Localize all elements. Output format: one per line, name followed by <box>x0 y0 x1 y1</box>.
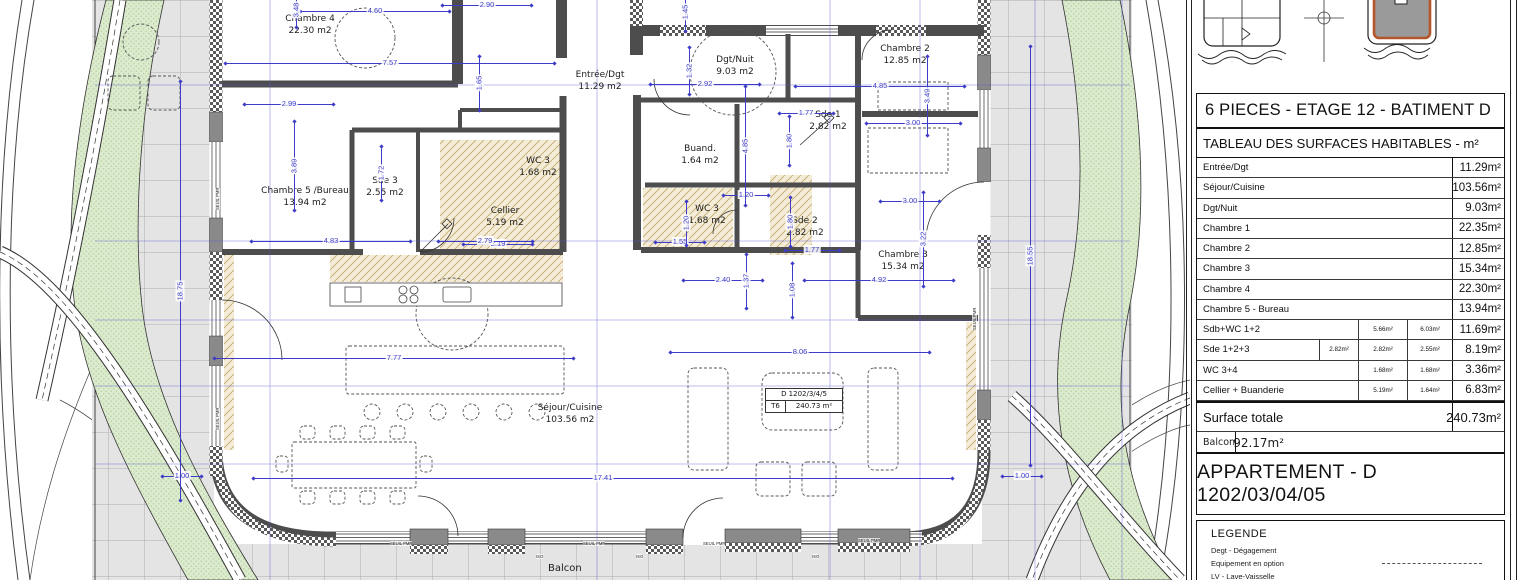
row-total-value: 11.29m² <box>1452 158 1504 177</box>
row-total-value: 8.19m² <box>1452 340 1504 359</box>
right-wall-details <box>978 0 991 450</box>
row-sub-value <box>1407 178 1452 197</box>
row-sub-value <box>1358 178 1407 197</box>
row-sub-value <box>1358 259 1407 278</box>
row-total-value: 22.30m² <box>1452 280 1504 299</box>
balcony-row: Balcon 92.17m² <box>1197 432 1287 454</box>
legend-item: LV - Lave-Vaisselle <box>1211 570 1504 580</box>
kitchen-counter <box>330 283 562 306</box>
floor-plan-drawing <box>0 0 1190 580</box>
surface-total-value: 240.73m² <box>1452 403 1504 431</box>
surface-table-row: Cellier + Buanderie5.19m²1.64m²6.83m² <box>1197 381 1504 401</box>
title-block-panel: 6 PIECES - ETAGE 12 - BATIMENT D TABLEAU… <box>1196 0 1507 580</box>
surface-table: TABLEAU DES SURFACES HABITABLES - m² Ent… <box>1196 128 1505 453</box>
row-sub-value <box>1319 320 1358 339</box>
row-sub-value <box>1358 239 1407 258</box>
balcony-row-label: Balcon <box>1197 432 1235 453</box>
row-sub-value <box>1319 361 1358 380</box>
row-sub-value <box>1319 219 1358 238</box>
row-sub-value <box>1319 280 1358 299</box>
surface-table-row: Chambre 422.30m² <box>1197 280 1504 300</box>
row-sub-value <box>1407 199 1452 218</box>
legend: LEGENDE Degt - Dégagement Equipement en … <box>1196 520 1505 580</box>
row-label: Chambre 2 <box>1197 239 1319 258</box>
surface-table-rows: Entrée/Dgt11.29m²Séjour/Cuisine103.56m²D… <box>1197 158 1504 401</box>
row-sub-value <box>1407 158 1452 177</box>
row-sub-value <box>1319 300 1358 319</box>
row-sub-value: 1.68m² <box>1407 361 1452 380</box>
surface-total-row: Surface totale 240.73m² <box>1197 401 1504 432</box>
row-total-value: 11.69m² <box>1452 320 1504 339</box>
building-key-plan <box>1198 0 1286 64</box>
surface-table-row: Dgt/Nuit9.03m² <box>1197 199 1504 219</box>
row-sub-value <box>1319 259 1358 278</box>
legend-item: Degt - Dégagement <box>1211 544 1504 557</box>
row-sub-value <box>1358 300 1407 319</box>
row-label: WC 3+4 <box>1197 361 1319 380</box>
row-label: Sdb+WC 1+2 <box>1197 320 1319 339</box>
sheet-border-line <box>1516 0 1517 580</box>
row-sub-value <box>1319 199 1358 218</box>
apartment-title: APPARTEMENT - D 1202/03/04/05 <box>1196 453 1505 515</box>
surface-table-row: Chambre 5 - Bureau13.94m² <box>1197 300 1504 320</box>
row-total-value: 6.83m² <box>1452 381 1504 400</box>
row-sub-value <box>1319 158 1358 177</box>
sheet-divider-line <box>1191 0 1192 580</box>
row-sub-value <box>1319 239 1358 258</box>
row-sub-value <box>1407 280 1452 299</box>
row-sub-value <box>1319 178 1358 197</box>
row-total-value: 103.56m² <box>1452 178 1504 197</box>
row-label: Chambre 4 <box>1197 280 1319 299</box>
row-sub-value: 5.66m² <box>1358 320 1407 339</box>
row-label: Chambre 1 <box>1197 219 1319 238</box>
row-label: Chambre 5 - Bureau <box>1197 300 1319 319</box>
surface-table-row: WC 3+41.68m²1.68m²3.36m² <box>1197 361 1504 381</box>
surface-table-row: Entrée/Dgt11.29m² <box>1197 158 1504 178</box>
locator-minis <box>1196 0 1507 90</box>
floor-plan: D 1202/3/4/5 T6 240.73 m² Balcon Chambre… <box>0 0 1190 580</box>
surface-table-row: Chambre 122.35m² <box>1197 219 1504 239</box>
crosshair-icon <box>1304 0 1344 62</box>
legend-dashed-sample <box>1382 563 1482 564</box>
row-label: Sde 1+2+3 <box>1197 340 1319 359</box>
floor-plan-sheet: D 1202/3/4/5 T6 240.73 m² Balcon Chambre… <box>0 0 1527 580</box>
row-sub-value: 2.82m² <box>1319 340 1358 359</box>
row-sub-value: 5.19m² <box>1358 381 1407 400</box>
row-sub-value <box>1358 199 1407 218</box>
row-label: Dgt/Nuit <box>1197 199 1319 218</box>
sheet-divider-line <box>1186 0 1187 580</box>
row-sub-value: 2.55m² <box>1407 340 1452 359</box>
row-sub-value <box>1358 280 1407 299</box>
row-sub-value: 1.64m² <box>1407 381 1452 400</box>
row-total-value: 15.34m² <box>1452 259 1504 278</box>
row-sub-value <box>1407 259 1452 278</box>
row-total-value: 12.85m² <box>1452 239 1504 258</box>
row-sub-value: 6.03m² <box>1407 320 1452 339</box>
building-highlight-plan <box>1364 0 1436 59</box>
surface-table-row: Chambre 212.85m² <box>1197 239 1504 259</box>
surface-table-row: Sde 1+2+32.82m²2.82m²2.55m²8.19m² <box>1197 340 1504 360</box>
row-sub-value <box>1319 381 1358 400</box>
left-wall-details <box>210 0 223 476</box>
surface-table-title: TABLEAU DES SURFACES HABITABLES - m² <box>1197 129 1504 158</box>
row-sub-value <box>1358 219 1407 238</box>
row-total-value: 22.35m² <box>1452 219 1504 238</box>
row-total-value: 13.94m² <box>1452 300 1504 319</box>
balcony-row-value: 92.17m² <box>1235 432 1287 453</box>
surface-table-row: Sdb+WC 1+25.66m²6.03m²11.69m² <box>1197 320 1504 340</box>
row-label: Entrée/Dgt <box>1197 158 1319 177</box>
row-sub-value <box>1407 239 1452 258</box>
row-sub-value <box>1358 158 1407 177</box>
row-total-value: 9.03m² <box>1452 199 1504 218</box>
row-sub-value <box>1407 219 1452 238</box>
surface-table-row: Séjour/Cuisine103.56m² <box>1197 178 1504 198</box>
row-label: Chambre 3 <box>1197 259 1319 278</box>
row-total-value: 3.36m² <box>1452 361 1504 380</box>
row-sub-value: 2.82m² <box>1358 340 1407 359</box>
surface-table-row: Chambre 315.34m² <box>1197 259 1504 279</box>
row-label: Séjour/Cuisine <box>1197 178 1319 197</box>
row-label: Cellier + Buanderie <box>1197 381 1319 400</box>
row-sub-value: 1.68m² <box>1358 361 1407 380</box>
surface-total-label: Surface totale <box>1197 403 1452 431</box>
sheet-border-line <box>1510 0 1511 580</box>
legend-title: LEGENDE <box>1211 528 1504 540</box>
row-sub-value <box>1407 300 1452 319</box>
sheet-title: 6 PIECES - ETAGE 12 - BATIMENT D <box>1196 93 1505 128</box>
